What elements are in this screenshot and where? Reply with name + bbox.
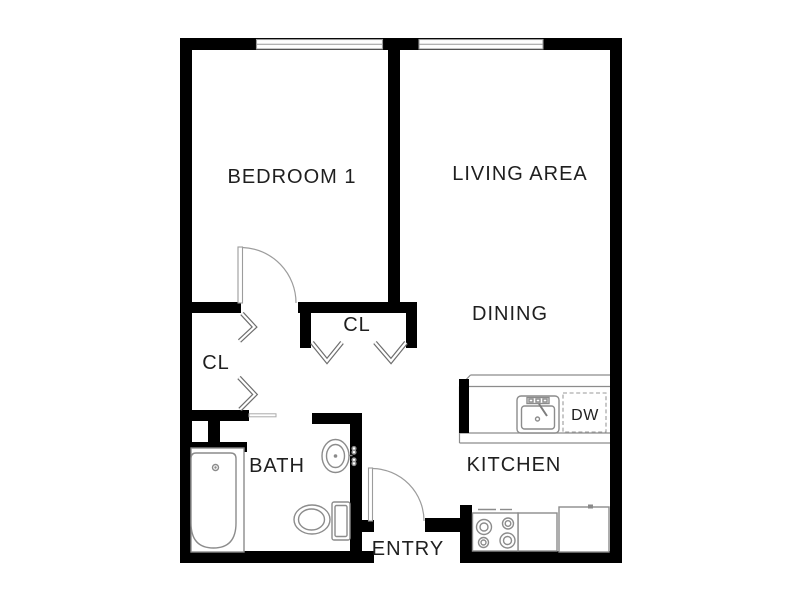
wall-bottom-left [180, 551, 374, 563]
sink-drain [334, 454, 338, 458]
refrigerator-outline [559, 507, 609, 552]
refrigerator-handle [588, 505, 593, 509]
bifold-door [375, 343, 406, 362]
door-leaf [369, 468, 373, 521]
wall-bath-right [350, 413, 362, 552]
wall-left [180, 38, 192, 563]
floor-plan: DW [0, 0, 800, 600]
entry-label: ENTRY [372, 538, 444, 560]
wall-kitchen-left [460, 505, 472, 563]
kitchen-sink-icon [517, 396, 559, 433]
wall-hall-closet-right [406, 313, 417, 348]
tub-basin [191, 453, 236, 548]
hall-closet-bifold-doors [312, 343, 406, 362]
bedroom-label: BEDROOM 1 [227, 166, 356, 188]
door-swing-arc [373, 469, 425, 522]
bedroom-door [238, 247, 296, 303]
wall-bedroom-bottom [180, 302, 241, 313]
dining-label: DINING [472, 303, 548, 325]
cabinet-outline [518, 513, 557, 551]
wall-entry-left-stub [362, 520, 374, 532]
wall-bedroom-living-divider [388, 50, 400, 302]
toilet-seat [299, 509, 325, 530]
hall-closet-label: CL [343, 314, 371, 336]
door-swing-arc [243, 248, 297, 304]
range-icon [473, 510, 519, 552]
wall-bottom-right [460, 551, 622, 563]
sink-handle [352, 450, 356, 454]
dishwasher: DW [563, 393, 606, 432]
tub-drain-dot [214, 466, 216, 468]
wall-hall-closet-left [300, 313, 311, 348]
window-living [419, 40, 543, 50]
bedroom-closet-label: CL [202, 352, 230, 374]
toilet-icon [294, 502, 350, 540]
walls [180, 38, 622, 563]
wall-counter-end [459, 379, 469, 433]
bifold-door [312, 343, 342, 362]
door-leaf [238, 247, 243, 303]
kitchen-counter: DW [459, 375, 610, 443]
sink-handle [352, 462, 356, 466]
wall-hall-closet-top [298, 302, 417, 313]
bathtub-icon [191, 448, 244, 552]
kitchen-label: KITCHEN [467, 454, 562, 476]
wall-plumbing-stub [208, 421, 220, 442]
entry-door [369, 468, 425, 521]
window-bedroom [257, 40, 383, 50]
toilet-tank-lid [335, 506, 347, 537]
wall-top [180, 38, 622, 50]
dishwasher-label: DW [571, 407, 599, 424]
bedroom-closet-bifold-doors [239, 314, 255, 410]
bath-label: BATH [249, 455, 305, 477]
living-area-label: LIVING AREA [452, 163, 588, 185]
wall-bedroom-closet-bottom [180, 410, 249, 421]
base-cabinet [518, 513, 557, 551]
floor-plan-drawing: DW [0, 0, 800, 600]
refrigerator-icon [559, 505, 609, 553]
wall-right [610, 38, 622, 563]
bath-doorway-threshold [249, 414, 276, 417]
